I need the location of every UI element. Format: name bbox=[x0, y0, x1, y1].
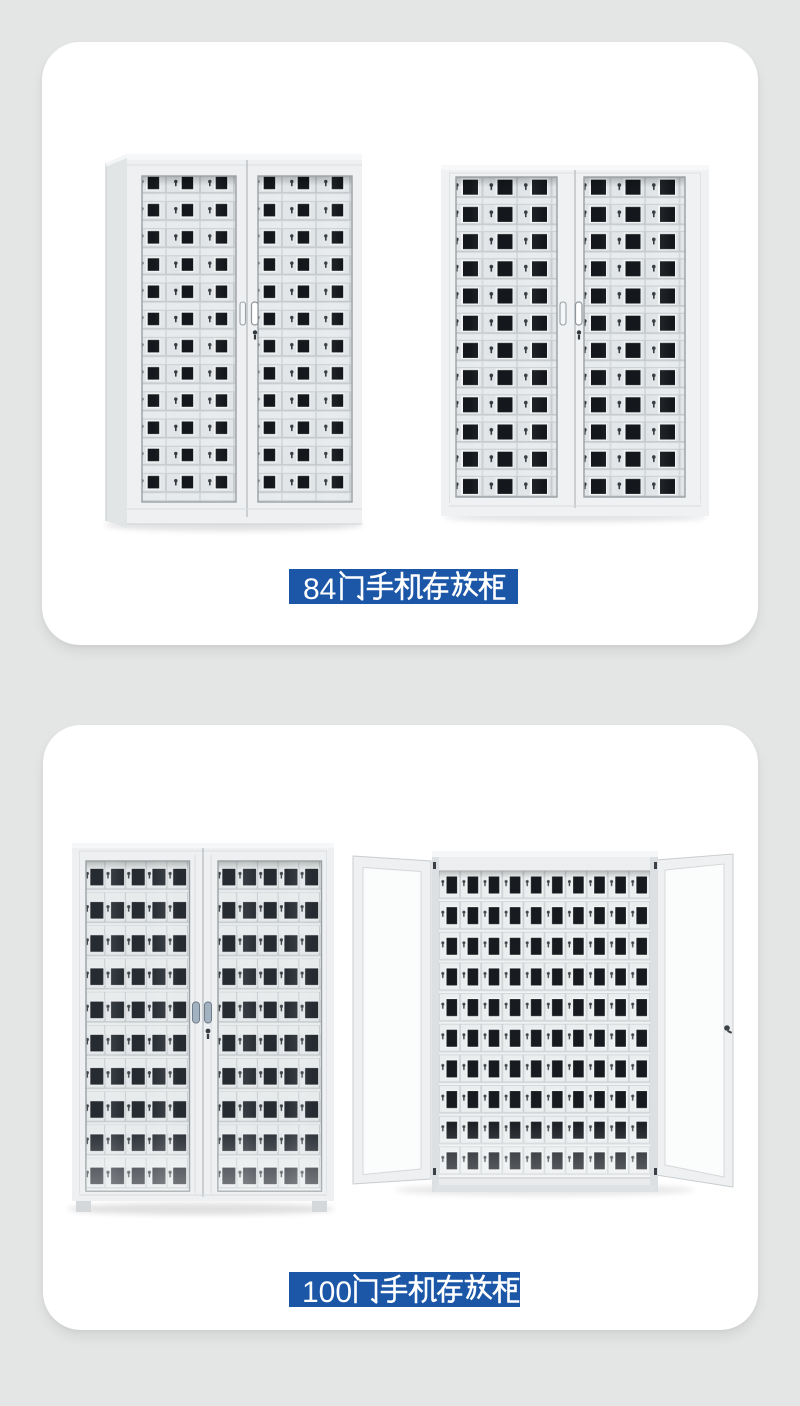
svg-text:100: 100 bbox=[302, 1276, 352, 1307]
svg-text:84: 84 bbox=[303, 573, 336, 604]
